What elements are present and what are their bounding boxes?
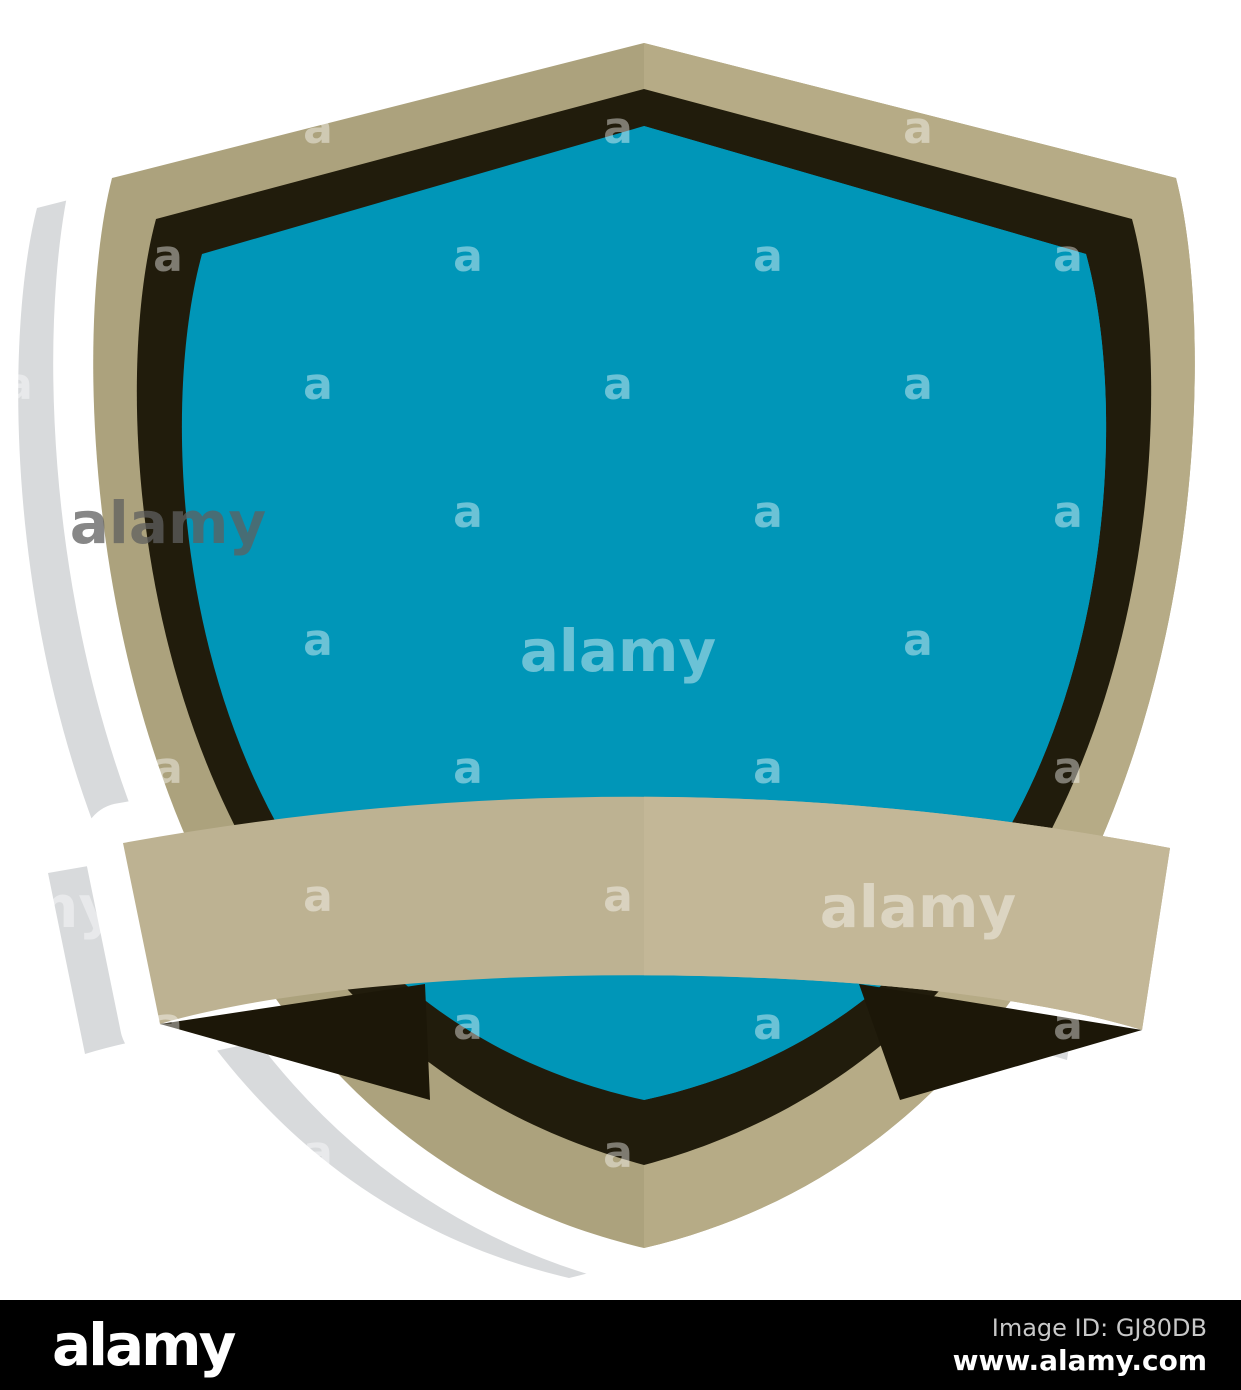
watermark-text: a bbox=[1203, 871, 1233, 922]
watermark-text: a bbox=[303, 359, 333, 410]
watermark-text: a bbox=[1203, 1127, 1233, 1178]
watermark-text: a bbox=[753, 231, 783, 282]
stock-image-page: aaaaaaaaaaaaaaaaaaaaaaaaaaaaaaaaaaaaaaaa… bbox=[0, 0, 1241, 1390]
watermark-text: a bbox=[753, 743, 783, 794]
watermark-text: a bbox=[153, 999, 183, 1050]
alamy-logo: alamy bbox=[52, 1300, 233, 1390]
watermark-text: a bbox=[753, 1255, 783, 1300]
watermark-text: a bbox=[303, 615, 333, 666]
watermark-text: a bbox=[303, 1127, 333, 1178]
watermark-text: a bbox=[3, 103, 33, 154]
footer-info: Image ID: GJ80DB www.alamy.com bbox=[953, 1313, 1207, 1378]
watermark-text: a bbox=[903, 615, 933, 666]
watermark-text: a bbox=[1053, 743, 1083, 794]
watermark-text: a bbox=[603, 871, 633, 922]
watermark-text: alamy bbox=[70, 489, 266, 557]
watermark-text: a bbox=[3, 1127, 33, 1178]
shield-emblem-illustration: aaaaaaaaaaaaaaaaaaaaaaaaaaaaaaaaaaaaaaaa… bbox=[0, 0, 1241, 1300]
watermark-text: a bbox=[753, 999, 783, 1050]
watermark-text: a bbox=[3, 359, 33, 410]
alamy-url-text: www.alamy.com bbox=[953, 1343, 1207, 1378]
watermark-text: a bbox=[903, 359, 933, 410]
watermark-text: a bbox=[603, 103, 633, 154]
watermark-text: a bbox=[3, 615, 33, 666]
watermark-text: a bbox=[1203, 359, 1233, 410]
watermark-text: a bbox=[303, 103, 333, 154]
watermark-text: a bbox=[603, 359, 633, 410]
watermark-text: a bbox=[453, 743, 483, 794]
watermark-text: a bbox=[1203, 615, 1233, 666]
watermark-text: a bbox=[1053, 231, 1083, 282]
watermark-text: a bbox=[903, 103, 933, 154]
watermark-text: a bbox=[453, 999, 483, 1050]
watermark-text: a bbox=[903, 1127, 933, 1178]
watermark-text: alamy bbox=[520, 617, 716, 685]
watermark-text: a bbox=[453, 487, 483, 538]
watermark-text: a bbox=[753, 487, 783, 538]
watermark-text: a bbox=[453, 1255, 483, 1300]
watermark-text: a bbox=[1053, 999, 1083, 1050]
watermark-text: a bbox=[153, 743, 183, 794]
watermark-text: a bbox=[453, 231, 483, 282]
watermark-text: a bbox=[603, 1127, 633, 1178]
watermark-text: a bbox=[1203, 103, 1233, 154]
watermark-text: alamy bbox=[820, 873, 1016, 941]
watermark-text: alamy bbox=[0, 873, 116, 941]
watermark-text: a bbox=[153, 231, 183, 282]
watermark-text: a bbox=[153, 1255, 183, 1300]
alamy-footer-bar: alamy Image ID: GJ80DB www.alamy.com bbox=[0, 1300, 1241, 1390]
image-id-text: Image ID: GJ80DB bbox=[953, 1313, 1207, 1343]
watermark-text: a bbox=[1053, 487, 1083, 538]
watermark-text: a bbox=[303, 871, 333, 922]
watermark-text: a bbox=[1053, 1255, 1083, 1300]
